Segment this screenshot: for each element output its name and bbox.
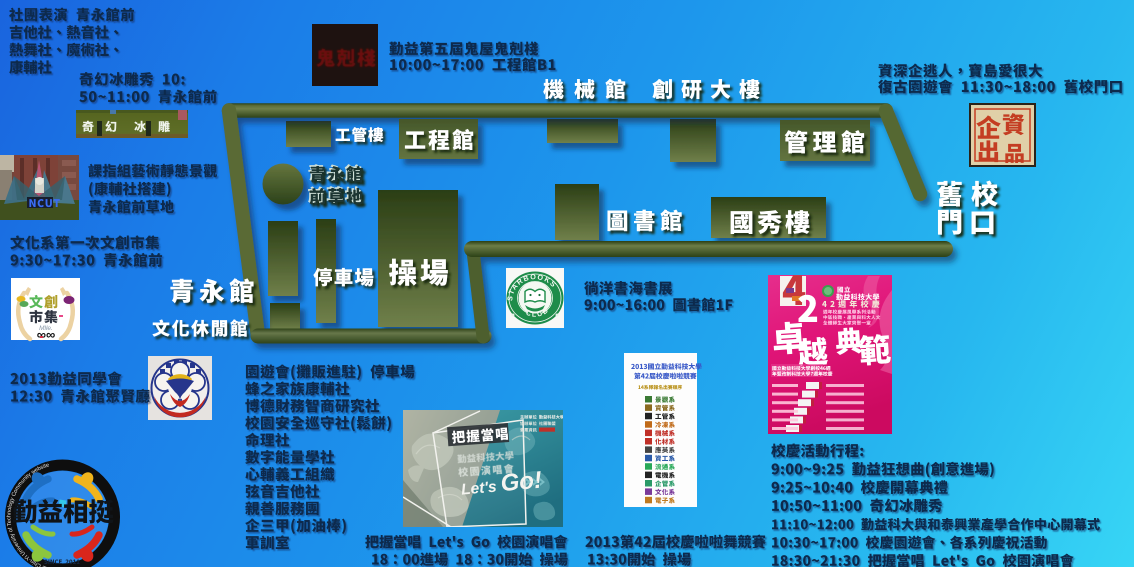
svg-text:∞∞: ∞∞: [37, 327, 56, 342]
